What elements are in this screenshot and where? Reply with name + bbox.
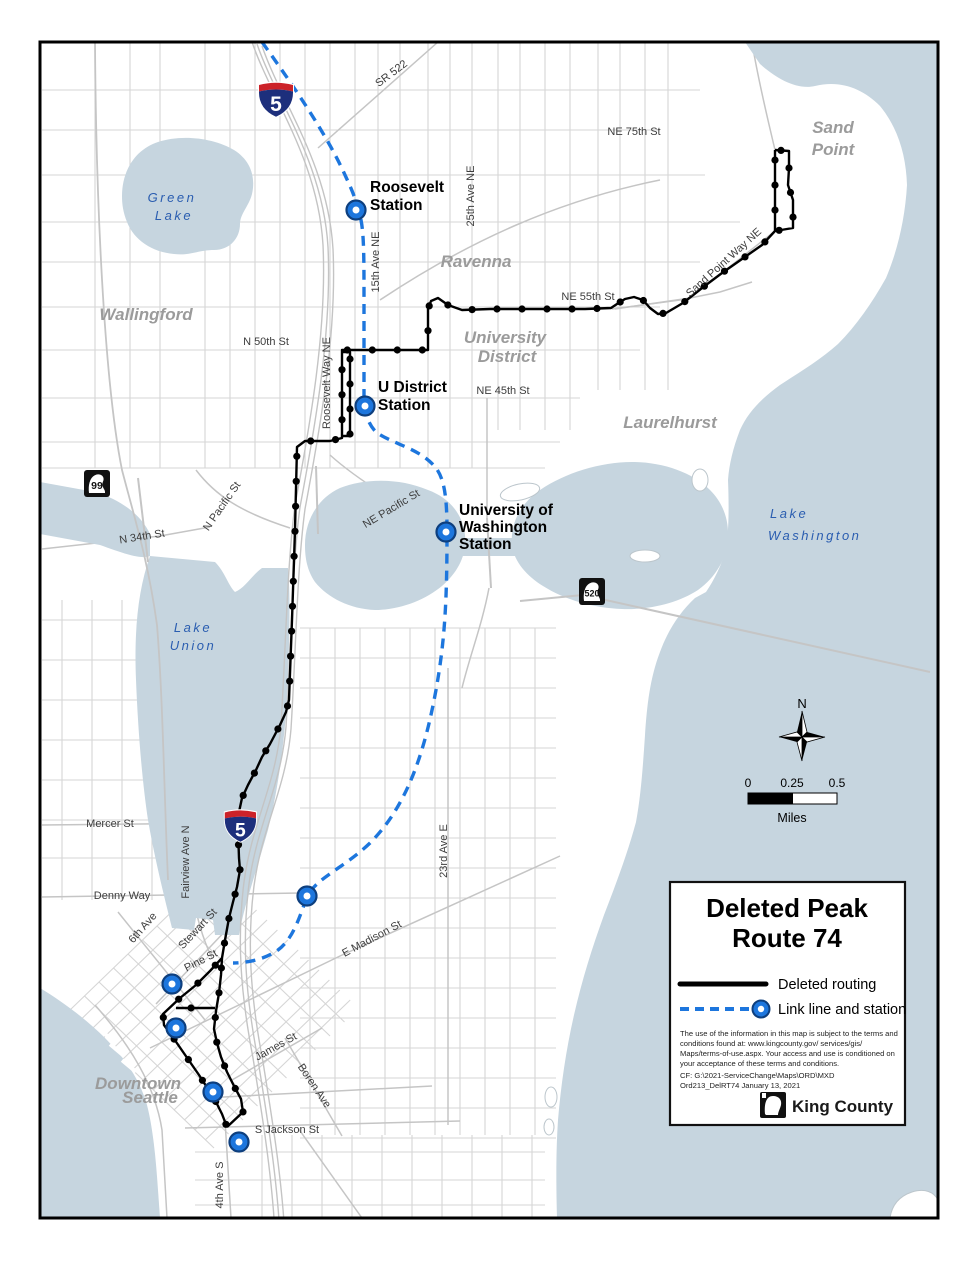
route-stop-dot xyxy=(236,866,243,873)
route-stop-dot xyxy=(160,1014,167,1021)
route-stop-dot xyxy=(215,989,222,996)
route-stop-dot xyxy=(394,346,401,353)
label-sand-point-2: Point xyxy=(812,140,856,159)
label-lake-washington-2: Washington xyxy=(768,528,861,543)
marsh-island xyxy=(630,550,660,562)
route-stop-dot xyxy=(617,298,624,305)
link-station-marker-center xyxy=(236,1139,243,1146)
map-canvas: 5 5 99 520 SR 522 NE 75th St NE 55th St … xyxy=(0,0,974,1260)
label-uw-station-2: Washington xyxy=(459,519,547,536)
route-stop-dot xyxy=(593,305,600,312)
route-stop-dot xyxy=(568,305,575,312)
route-stop-dot xyxy=(659,310,666,317)
route-stop-dot xyxy=(761,238,768,245)
north-label: N xyxy=(797,696,806,711)
foster-island xyxy=(692,469,708,491)
route-stop-dot xyxy=(338,366,345,373)
route-stop-dot xyxy=(221,940,228,947)
label-university-district-1: University xyxy=(464,328,548,347)
route-stop-dot xyxy=(293,453,300,460)
scale-05: 0.5 xyxy=(829,776,846,790)
route-stop-dot xyxy=(493,305,500,312)
link-station-marker-center xyxy=(169,981,176,988)
link-station-marker-center xyxy=(304,893,311,900)
route-stop-dot xyxy=(469,306,476,313)
label-downtown-2: Seattle xyxy=(122,1088,178,1107)
disclaimer-line-3: Maps/terms-of-use.aspx. Your access and … xyxy=(680,1049,895,1058)
label-university-district-2: District xyxy=(478,347,538,366)
route-stop-dot xyxy=(232,891,239,898)
scale-units: Miles xyxy=(777,811,806,825)
king-county-crown-glyph xyxy=(762,1093,766,1098)
label-sand-point-1: Sand xyxy=(812,118,854,137)
disclaimer-line-2: conditions found at: www.kingcounty.gov/… xyxy=(680,1039,863,1048)
street-label-25th: 25th Ave NE xyxy=(465,166,477,227)
legend-station-swatch-center xyxy=(758,1006,764,1012)
route-stop-dot xyxy=(771,182,778,189)
route-stop-dot xyxy=(424,327,431,334)
route-stop-dot xyxy=(785,164,792,171)
legend-title-1: Deleted Peak xyxy=(706,893,868,923)
route-stop-dot xyxy=(222,1121,229,1128)
label-u-district-station-2: Station xyxy=(378,397,431,414)
route-stop-dot xyxy=(332,436,339,443)
disclaimer-line-1: The use of the information in this map i… xyxy=(680,1029,898,1038)
route-stop-dot xyxy=(741,253,748,260)
route-stop-dot xyxy=(291,553,298,560)
file-ref-line-1: CF: G:\2021-ServiceChange\Maps\ORD\MXD xyxy=(680,1071,835,1080)
street-label-4th-s: 4th Ave S xyxy=(214,1162,226,1209)
street-label-roosevelt-way: Roosevelt Way NE xyxy=(321,337,333,429)
scale-0: 0 xyxy=(745,776,752,790)
route-stop-dot xyxy=(199,1077,206,1084)
route-stop-dot xyxy=(346,405,353,412)
route-stop-dot xyxy=(225,915,232,922)
label-roosevelt-station-2: Station xyxy=(370,197,423,214)
shore-lagoon xyxy=(545,1087,557,1107)
disclaimer-line-4: your acceptance of these terms and condi… xyxy=(680,1059,839,1068)
route-stop-dot xyxy=(274,725,281,732)
route-stop-dot xyxy=(218,964,225,971)
street-label-n50: N 50th St xyxy=(243,336,289,348)
legend-link-label: Link line and station xyxy=(778,1002,906,1018)
link-station-marker-center xyxy=(210,1089,217,1096)
route-stop-dot xyxy=(346,380,353,387)
route-stop-dot xyxy=(288,628,295,635)
link-station-marker-center xyxy=(173,1025,180,1032)
label-u-district-station-1: U District xyxy=(378,379,447,396)
route-stop-dot xyxy=(239,1108,246,1115)
route-stop-dot xyxy=(776,227,783,234)
route-stop-dot xyxy=(426,302,433,309)
route-stop-dot xyxy=(284,702,291,709)
street-label-denny: Denny Way xyxy=(94,890,151,902)
route-stop-dot xyxy=(771,157,778,164)
label-ravenna: Ravenna xyxy=(441,252,512,271)
route-stop-dot xyxy=(338,416,345,423)
route-stop-dot xyxy=(213,1039,220,1046)
i5-shield-number: 5 xyxy=(235,820,246,841)
route-stop-dot xyxy=(444,301,451,308)
route-stop-dot xyxy=(640,297,647,304)
link-station-marker-center xyxy=(443,529,450,536)
route-stop-dot xyxy=(771,207,778,214)
route-stop-dot xyxy=(338,391,345,398)
route-stop-dot xyxy=(232,1085,239,1092)
route-stop-dot xyxy=(346,355,353,362)
label-lake-union-1: Lake xyxy=(174,620,212,635)
route-stop-dot xyxy=(419,346,426,353)
route-stop-dot xyxy=(777,147,784,154)
street-label-s-jackson: S Jackson St xyxy=(255,1124,319,1136)
route-stop-dot xyxy=(344,346,351,353)
street-label-15th: 15th Ave NE xyxy=(370,232,382,293)
route-stop-dot xyxy=(543,305,550,312)
street-label-fairview: Fairview Ave N xyxy=(180,825,192,898)
route-stop-dot xyxy=(194,980,201,987)
route-stop-dot xyxy=(289,603,296,610)
sr520-shield: 520 xyxy=(579,578,605,605)
file-ref-line-2: Ord213_DelRT74 January 13, 2021 xyxy=(680,1081,800,1090)
scale-025: 0.25 xyxy=(780,776,804,790)
label-laurelhurst: Laurelhurst xyxy=(623,413,718,432)
route-stop-dot xyxy=(185,1056,192,1063)
sr99-shield: 99 xyxy=(84,470,110,497)
route-stop-dot xyxy=(221,1062,228,1069)
route-stop-dot xyxy=(293,478,300,485)
sr520-shield-number: 520 xyxy=(584,589,599,599)
street-label-23rd: 23rd Ave E xyxy=(438,824,450,878)
route-stop-dot xyxy=(346,430,353,437)
route-stop-dot xyxy=(292,503,299,510)
route-stop-dot xyxy=(212,1014,219,1021)
route-stop-dot xyxy=(251,770,258,777)
label-wallingford: Wallingford xyxy=(99,305,193,324)
route-stop-dot xyxy=(286,678,293,685)
label-green-lake-2: Lake xyxy=(155,208,193,223)
legend-title-2: Route 74 xyxy=(732,923,842,953)
link-station-marker-center xyxy=(353,207,360,214)
legend-deleted-routing-label: Deleted routing xyxy=(778,977,876,993)
route-stop-dot xyxy=(518,305,525,312)
label-roosevelt-station-1: Roosevelt xyxy=(370,179,444,196)
route-stop-dot xyxy=(187,1004,194,1011)
route-map-page: 5 5 99 520 SR 522 NE 75th St NE 55th St … xyxy=(0,0,974,1260)
route-stop-dot xyxy=(681,298,688,305)
street-label-mercer: Mercer St xyxy=(86,818,134,830)
route-stop-dot xyxy=(175,996,182,1003)
route-stop-dot xyxy=(262,747,269,754)
route-stop-dot xyxy=(307,437,314,444)
label-uw-station-1: University of xyxy=(459,502,554,519)
route-stop-dot xyxy=(240,792,247,799)
shore-lagoon xyxy=(544,1119,554,1135)
label-green-lake-1: Green xyxy=(148,190,197,205)
legend-box: Deleted Peak Route 74 Deleted routing Li… xyxy=(670,882,906,1125)
sr99-shield-number: 99 xyxy=(91,480,103,492)
i5-shield-number: 5 xyxy=(270,93,282,116)
route-stop-dot xyxy=(291,528,298,535)
label-uw-station-3: Station xyxy=(459,536,512,553)
label-lake-union-2: Union xyxy=(170,638,216,653)
king-county-logo-text: King County xyxy=(792,1097,894,1116)
map-body: 5 5 99 520 SR 522 NE 75th St NE 55th St … xyxy=(40,42,938,1222)
street-label-ne55: NE 55th St xyxy=(561,291,614,303)
route-stop-dot xyxy=(789,214,796,221)
label-lake-washington-1: Lake xyxy=(770,506,808,521)
route-stop-dot xyxy=(287,653,294,660)
route-stop-dot xyxy=(290,578,297,585)
street-label-ne75: NE 75th St xyxy=(607,126,660,138)
route-stop-dot xyxy=(369,346,376,353)
link-station-marker-center xyxy=(362,403,369,410)
route-stop-dot xyxy=(787,189,794,196)
street-label-ne45: NE 45th St xyxy=(476,385,529,397)
